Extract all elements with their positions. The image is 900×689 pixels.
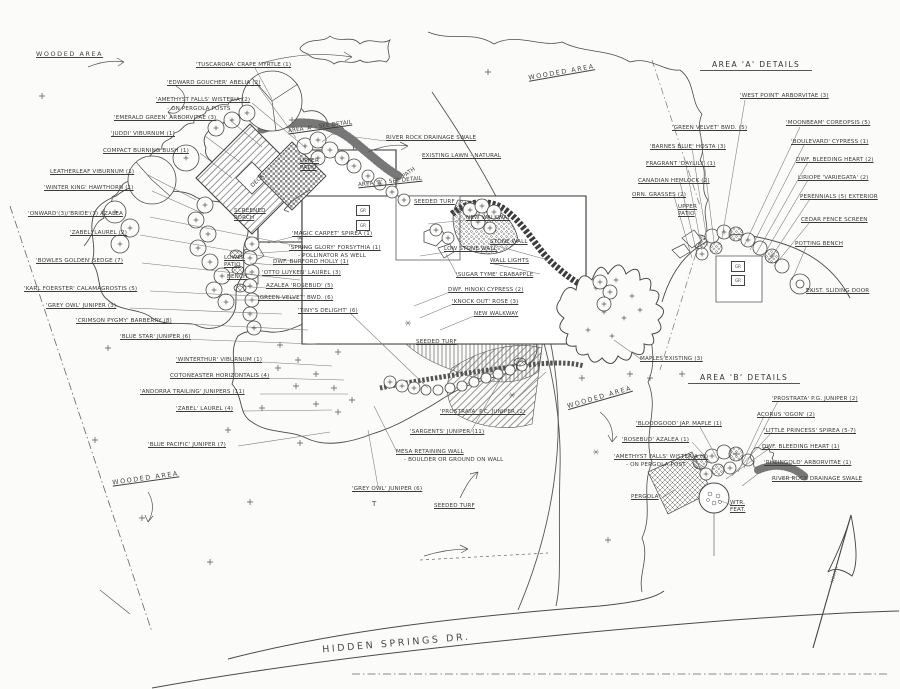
plant-label: 'TINY'S DELIGHT' (6) bbox=[298, 308, 358, 315]
turf-label: SEEDED TURF bbox=[414, 199, 455, 206]
plant-note: - ON PERGOLA POSTS bbox=[167, 106, 231, 113]
plant-label: 'BOULEVARD' CYPRESS (1) bbox=[791, 139, 869, 146]
landscape-plan: WOODED AREA 'TUSCARORA' CRAPE MYRTLE (1)… bbox=[0, 0, 900, 689]
plant-label: 'BLUE PACIFIC' JUNIPER (7) bbox=[148, 442, 226, 449]
feature-label: LOW STONE WALL bbox=[444, 246, 497, 253]
plant-label: PERENNIALS (5) EXTERIOR bbox=[800, 194, 878, 201]
plant-label: COMPACT BURNING BUSH (1) bbox=[103, 148, 189, 155]
bench-label: BENCH bbox=[227, 274, 247, 281]
plant-label: 'BLUE STAR' JUNIPER (6) bbox=[120, 334, 191, 341]
plant-label: FRAGRANT 'DAYLILY' (1) bbox=[646, 161, 715, 168]
feature-label: MESA RETAINING WALL bbox=[396, 449, 464, 456]
plant-label: 'ROSEBUD' AZALEA (1) bbox=[622, 437, 689, 444]
plant-label: ORN. GRASSES (2) bbox=[632, 192, 686, 199]
area-a-title: AREA 'A' DETAILS bbox=[700, 60, 812, 71]
feature-label: NEW WALKWAY bbox=[474, 311, 518, 318]
plant-label: 'SARGENTS' JUNIPER (11) bbox=[410, 429, 484, 436]
plant-label: 'BOWLES GOLDEN' SEDGE (7) bbox=[36, 258, 123, 265]
feature-note: - BOULDER OR GROUND ON WALL bbox=[404, 457, 503, 464]
plant-label: 'EMERALD GREEN' ARBORVITAE (3) bbox=[114, 115, 216, 122]
feature-label: POTTING BENCH bbox=[795, 241, 843, 248]
feature-label: PERGOLA bbox=[631, 494, 659, 501]
plant-label: 'BARNES BLUE' HOSTA (3) bbox=[650, 144, 726, 151]
patio-label: UPPER PATIO bbox=[300, 158, 328, 172]
plant-label: 'PROSTRATA' P.G. JUNIPER (2) bbox=[772, 396, 858, 403]
utility-box: GR bbox=[731, 275, 745, 286]
plant-label: 'WINTERTHUR' VIBURNUM (1) bbox=[176, 357, 262, 364]
plant-label: DWF. BURFORD HOLLY (1) bbox=[273, 259, 349, 266]
plant-label: 'LITTLE PRINCESS' SPIREA (5-7) bbox=[764, 428, 856, 435]
feature-label: CEDAR FENCE SCREEN bbox=[801, 217, 868, 224]
tree-label: MAPLES EXISTING (3) bbox=[640, 356, 703, 363]
feature-label: RIVER ROCK DRAINAGE SWALE bbox=[772, 476, 862, 483]
plant-label: 'GREY OWL' JUNIPER (6) bbox=[352, 486, 422, 493]
plant-label: 'SPRING GLORY' FORSYTHIA (1) bbox=[289, 245, 381, 252]
utility-box: GR bbox=[356, 205, 370, 216]
turf-label: SEEDED TURF bbox=[416, 339, 457, 346]
plant-label: 'RHEINGOLD' ARBORVITAE (1) bbox=[764, 460, 851, 467]
plant-label: 'TUSCARORA' CRAPE MYRTLE (1) bbox=[196, 62, 291, 69]
plant-label: 'AMETHYST FALLS' WISTERIA (1) bbox=[614, 454, 708, 461]
plant-label: 'SUGAR TYME' CRABAPPLE bbox=[456, 272, 533, 279]
plant-label: COTONEASTER HORIZONTALIS (4) bbox=[170, 373, 269, 380]
plant-label: 'ZABEL' LAUREL (2) bbox=[70, 230, 127, 237]
utility-box: GR bbox=[731, 261, 745, 272]
plant-label: DWF. BLEEDING HEART (1) bbox=[762, 444, 840, 451]
plant-label: CANADIAN HEMLOCK (2) bbox=[638, 178, 710, 185]
plant-label: ACORUS 'OGON' (2) bbox=[757, 412, 815, 419]
plant-label: 'GREEN VELVET' BWD. (5) bbox=[672, 125, 747, 132]
wooded-area-label: WOODED AREA bbox=[36, 50, 103, 58]
feature-label: NEW WALKWAY bbox=[466, 215, 510, 222]
plant-label: 'KARL FOERSTER' CALAMAGROSTIS (5) bbox=[24, 286, 137, 293]
water-feature-label: WTR. FEAT. bbox=[730, 500, 756, 514]
plant-label: 'JUDDI' VIBURNUM (1) bbox=[111, 131, 175, 138]
area-b-title: AREA 'B' DETAILS bbox=[688, 373, 800, 384]
patio-label: LOWER PATIO bbox=[224, 255, 252, 269]
utility-box: GR bbox=[356, 220, 370, 231]
plant-label: 'BLOODGOOD' JAP. MAPLE (1) bbox=[636, 421, 722, 428]
plant-label: DWF. BLEEDING HEART (2) bbox=[796, 157, 874, 164]
plant-label: 'MOONBEAM' COREOPSIS (5) bbox=[786, 120, 870, 127]
plant-label: 'WEST POINT' ARBORVITAE (3) bbox=[740, 93, 829, 100]
plant-label: 'ONWARD'(3)/'BRIDE'(3) AZALEA bbox=[28, 211, 123, 218]
plant-label: 'CRIMSON PYGMY' BARBERRY (8) bbox=[76, 318, 172, 325]
room-label: SCREENED PORCH bbox=[234, 208, 272, 222]
plant-label: 'AMETHYST FALLS' WISTERIA (2) bbox=[156, 97, 250, 104]
plant-label: 'PROSTRATA' P.C. JUNIPER (2) bbox=[440, 409, 525, 416]
plant-label: 'MAGIC CARPET' SPIREA (1) bbox=[292, 231, 372, 238]
plant-label: LEATHERLEAF VIBURNUM (1) bbox=[50, 169, 134, 176]
turf-label: SEEDED TURF bbox=[434, 503, 475, 510]
plant-label: AZALEA 'ROSEBUD' (5) bbox=[266, 283, 333, 290]
plant-label: 'ANDORRA TRAILING' JUNIPERS (11) bbox=[140, 389, 245, 396]
plant-note: - ON PERGOLA POST bbox=[626, 462, 686, 469]
plant-label: DWF. HINOKI CYPRESS (2) bbox=[448, 287, 524, 294]
feature-label: EXIST. SLIDING DOOR bbox=[806, 288, 869, 295]
plant-label: 'KNOCK OUT' ROSE (3) bbox=[452, 299, 518, 306]
patio-label: UPPER PATIO bbox=[678, 204, 704, 218]
feature-label: STONE WALL bbox=[490, 239, 528, 246]
plant-label: 'GREY OWL' JUNIPER (3) bbox=[46, 303, 116, 310]
plant-label: 'ZABEL' LAUREL (4) bbox=[176, 406, 233, 413]
plant-label: 'EDWARD GOUCHER' ABELIA (2) bbox=[167, 80, 261, 87]
plant-label: LIRIOPE 'VARIEGATA' (2) bbox=[798, 175, 869, 182]
plant-label: 'GREEN VELVET' BWD. (6) bbox=[258, 295, 333, 302]
plant-label: 'OTTO LUYKEN' LAUREL (3) bbox=[262, 270, 341, 277]
feature-label: EXISTING LAWN - NATURAL bbox=[422, 153, 501, 160]
feature-label: RIVER ROCK DRAINAGE SWALE bbox=[386, 135, 476, 142]
feature-label: WALL LIGHTS bbox=[490, 258, 529, 265]
plant-label: 'WINTER KING' HAWTHORN (1) bbox=[44, 185, 134, 192]
t-mark: T bbox=[372, 500, 376, 509]
